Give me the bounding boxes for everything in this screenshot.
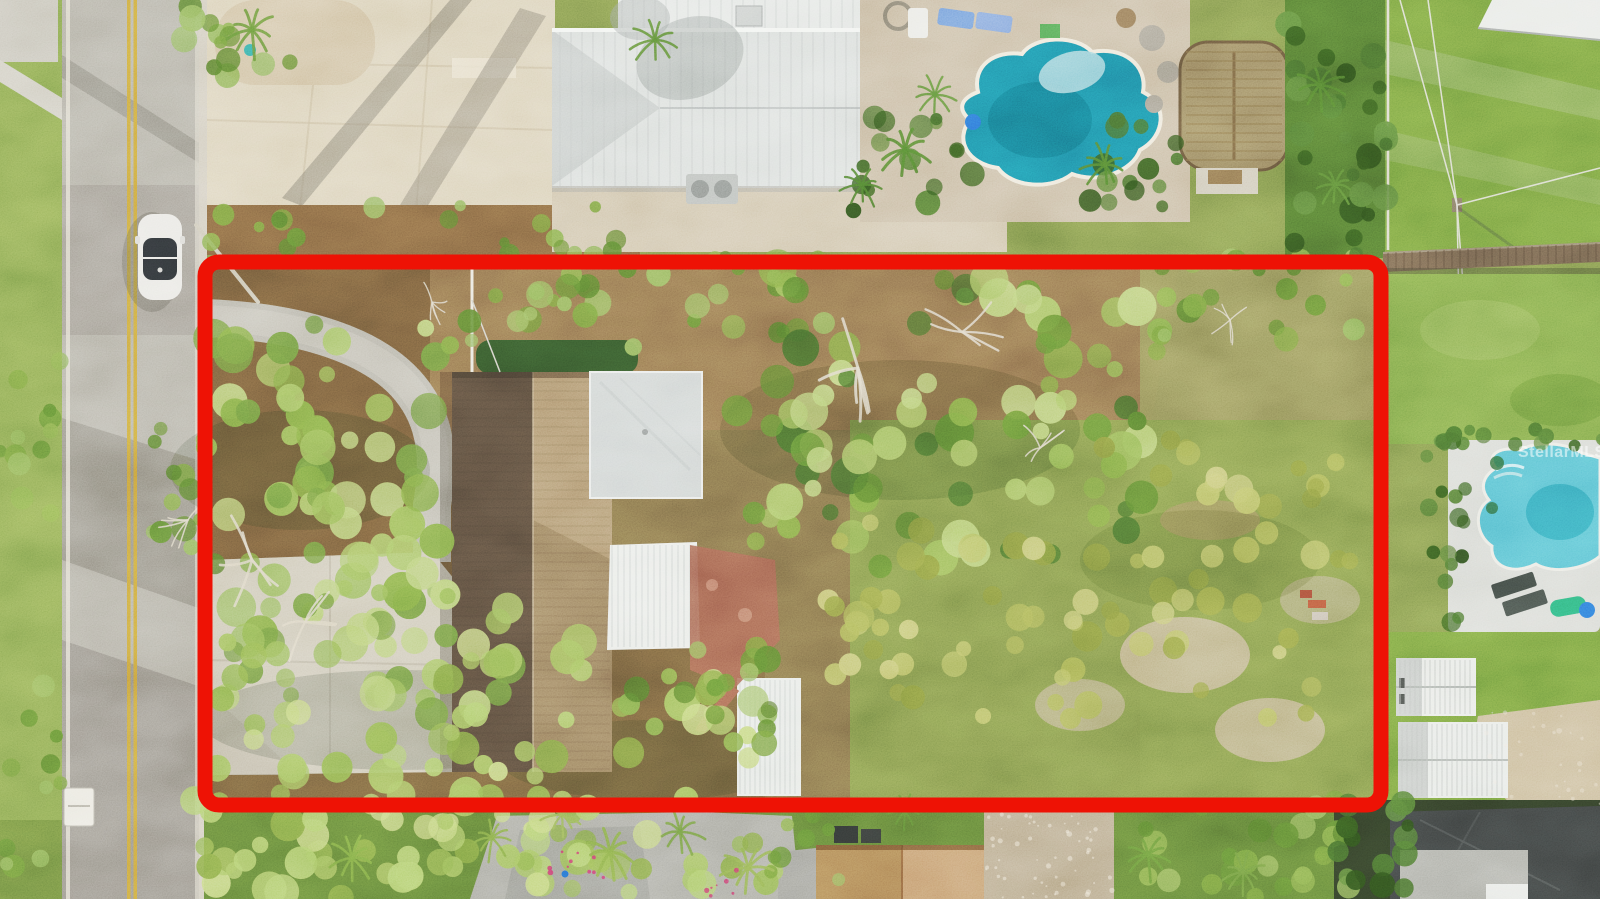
aerial-photo-canvas: StellarMLS (0, 0, 1600, 899)
aerial-photo: StellarMLS (0, 0, 1600, 899)
watermark: StellarMLS (1518, 444, 1600, 461)
film-grain (0, 0, 1600, 899)
